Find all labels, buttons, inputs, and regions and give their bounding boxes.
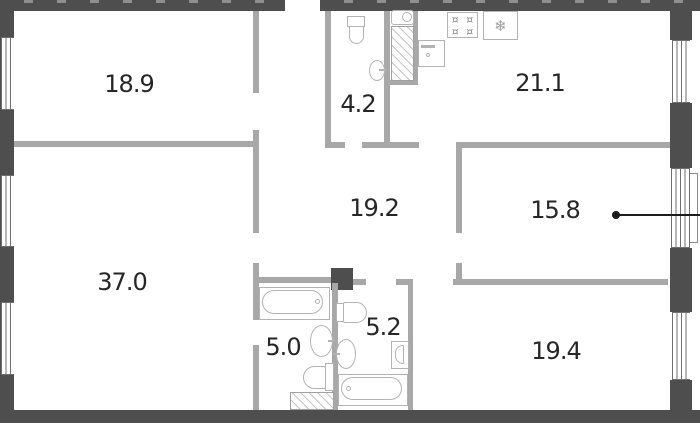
callout-dot — [612, 211, 620, 219]
wall-kitchen-15-8-divider — [456, 142, 670, 148]
wall-15-8-left — [456, 148, 462, 233]
kitchen-faucet-icon — [421, 45, 435, 48]
toilet-bowl-icon — [303, 366, 326, 389]
wall-right-segment-3 — [670, 248, 692, 312]
faucet-icon — [333, 353, 340, 355]
wall-5-0-top — [256, 277, 331, 283]
duct-hatch — [290, 392, 334, 410]
wall-5-2-top-b — [396, 279, 413, 285]
stove-burners-icon: ¤¤¤¤ — [448, 13, 477, 37]
bathtub-inner — [262, 290, 323, 314]
bathtub-icon — [259, 287, 330, 320]
window-left-1 — [1, 37, 14, 110]
room-area-label: 4.2 — [340, 90, 375, 118]
wall-bathroom-top-left — [325, 11, 331, 148]
faucet-icon — [328, 340, 335, 342]
room-area-label: 19.2 — [349, 194, 398, 222]
wall-bathroom-top-bottom-b — [362, 142, 419, 148]
washing-machine-door-icon — [395, 345, 404, 364]
wall-bathroom-top-bottom-a — [325, 142, 345, 148]
wall-top-right-segment — [320, 0, 700, 11]
wall-left-bottom-jamb — [253, 345, 259, 410]
window-left-3 — [1, 302, 14, 375]
toilet-bowl-icon — [343, 302, 367, 323]
wall-right-segment-2 — [670, 103, 692, 168]
callout-line — [616, 214, 700, 216]
wall-15-8-left-jamb — [456, 263, 462, 279]
floor-plan: ¤¤¤¤ ❄ 18.9 4.2 21.1 19.2 15.8 37.0 5.0 … — [0, 0, 700, 423]
room-area-label: 21.1 — [515, 69, 564, 97]
refrigerator-icon: ❄ — [483, 11, 518, 40]
room-area-label: 37.0 — [97, 268, 146, 296]
wall-right-segment-4 — [670, 380, 692, 423]
wall-15-8-19-4-divider — [453, 279, 668, 285]
kitchen-sink-drain-icon — [426, 53, 430, 57]
wall-bottom — [0, 410, 700, 423]
window-right-3 — [672, 312, 690, 380]
toilet-bowl-icon — [349, 26, 364, 44]
window-right-2-frame — [689, 173, 698, 243]
bathtub-drain-icon — [315, 299, 320, 304]
bathtub-drain-icon — [346, 386, 351, 391]
wall-top-left-segment — [0, 0, 285, 11]
room-area-label: 15.8 — [530, 196, 579, 224]
wall-5-2-top-a — [353, 279, 366, 285]
basin-bowl-icon — [402, 12, 412, 22]
faucet-icon — [379, 69, 386, 71]
room-area-label: 18.9 — [104, 70, 153, 98]
room-area-label: 5.0 — [265, 333, 300, 361]
wall-right-segment-1 — [670, 11, 692, 40]
wall-18-9-37-0-divider — [14, 141, 256, 147]
window-right-1 — [672, 40, 690, 103]
toilet-tank-icon — [325, 363, 334, 391]
wall-entry-left-upper — [253, 11, 259, 93]
window-left-2 — [1, 175, 14, 247]
washing-machine-icon — [391, 341, 409, 369]
window-right-2 — [671, 168, 690, 248]
duct-hatch — [391, 26, 414, 81]
room-area-label: 5.2 — [365, 313, 400, 341]
room-area-label: 19.4 — [531, 337, 580, 365]
stove-icon: ¤¤¤¤ — [447, 12, 478, 38]
bathtub-icon — [338, 374, 408, 406]
